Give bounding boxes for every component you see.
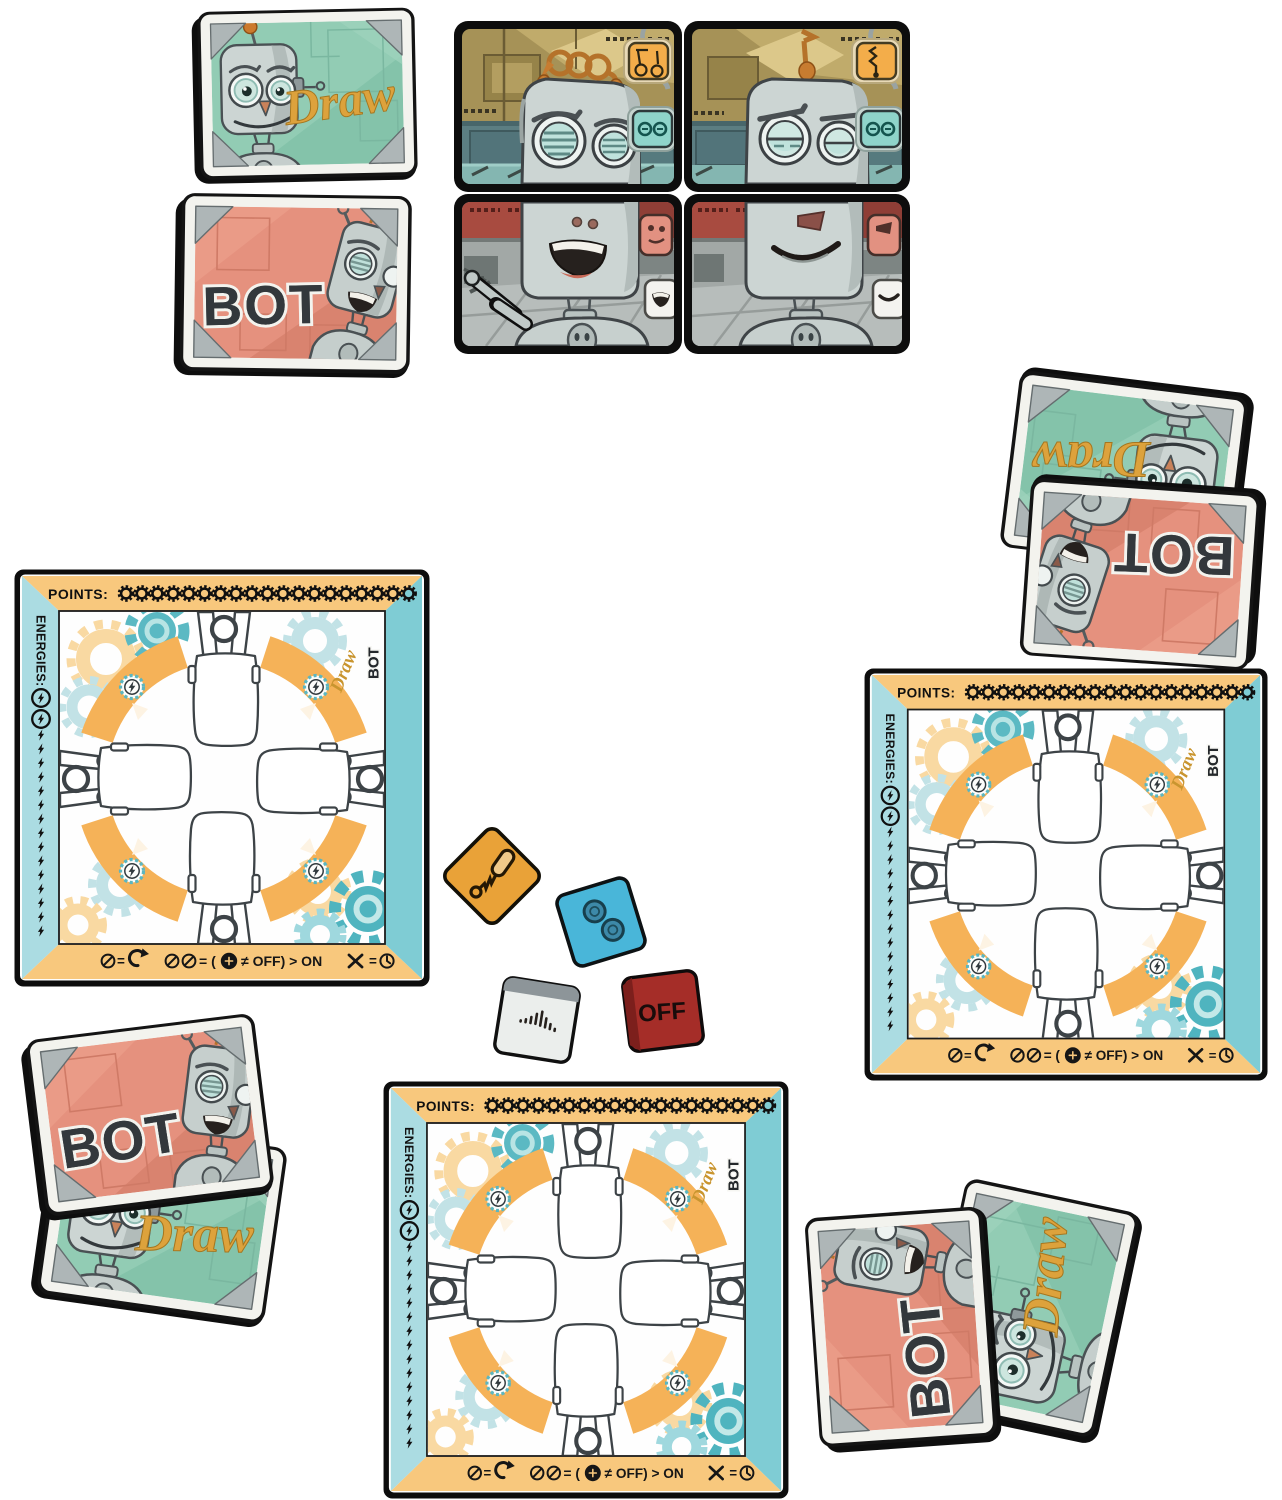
svg-text:OFF: OFF — [637, 997, 687, 1027]
